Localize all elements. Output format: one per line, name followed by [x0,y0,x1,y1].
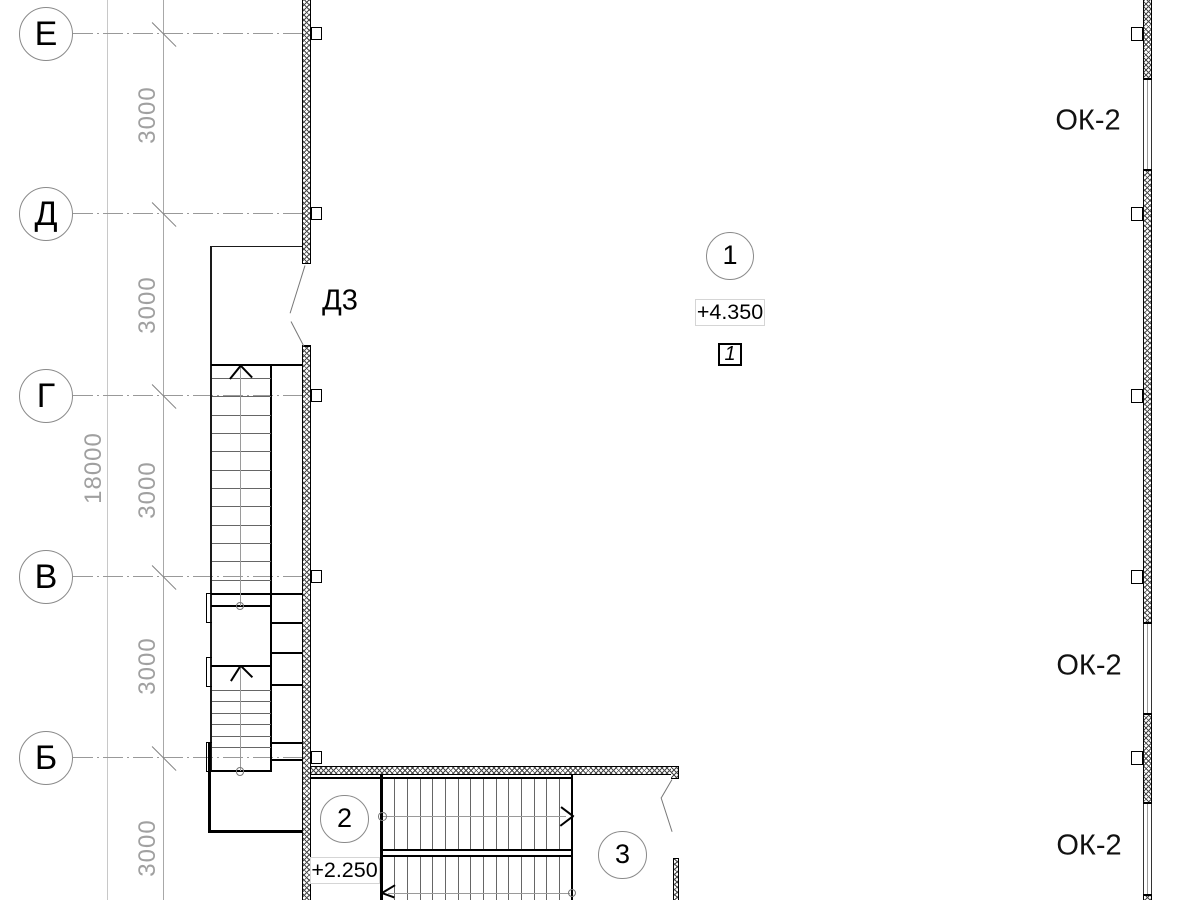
door-leader-line [661,779,672,797]
stair-tread [212,747,271,748]
grid-axis-bubble: Д [19,187,73,241]
wall-pilaster [311,389,323,402]
stair-tread [212,736,271,737]
stair-tread [212,488,271,489]
stair-tread [394,779,395,849]
side-step-edge [271,622,302,624]
lower-stair-stringer [571,775,573,900]
stair-tread [534,779,535,849]
stair-tread [521,857,522,900]
window-glazing-line [1147,803,1148,895]
dimension-tick [151,746,176,771]
room-number-label: 2 [337,803,352,834]
wall-pilaster [311,751,323,764]
stair-walk-line [240,366,241,606]
window-end-cap [1143,622,1153,624]
wall-hatched [1143,0,1151,79]
dimension-label: 3000 [136,276,160,333]
stair-tread [559,779,560,849]
dimension-tick [151,384,176,409]
lower-stair-stringer [380,775,382,900]
wall-pilaster [1131,27,1144,41]
stair-tread [546,857,547,900]
window-tag: ОК-2 [1055,107,1120,136]
stair-tread [212,506,271,507]
stair-tread [508,779,509,849]
stair-tread [212,690,271,691]
axis-line [73,213,302,214]
stair-tread [212,713,271,714]
stair-direction-arrow [240,365,253,378]
axis-line [73,576,302,577]
door-leader-line [661,797,673,831]
dimension-tick [151,202,176,227]
elevation-box: +4.350 [695,299,765,326]
stair-tread [458,857,459,900]
elevation-value: +4.350 [697,300,763,325]
stair-tread [212,396,271,397]
stair-tread [212,525,271,526]
stair-tread [496,857,497,900]
stair-tread [521,779,522,849]
room-number-circle: 2 [320,795,369,844]
stair-tread [483,857,484,900]
stair-tread [420,779,421,849]
stair-tread [496,779,497,849]
wall-hatched [673,858,680,900]
window-glazing-line [1147,623,1148,714]
stair-tread [212,724,271,725]
stair-tread [508,857,509,900]
stairwell-top-wall-line [211,246,302,248]
grid-axis-label: Д [34,195,57,234]
stair-tread [394,857,395,900]
grid-axis-bubble: Г [19,369,73,423]
wall-hatched [1143,170,1151,623]
stairwell-pilaster [206,742,213,772]
door-leader-line [291,321,305,346]
stair-tread [458,779,459,849]
wall-pilaster [1131,207,1144,221]
stair-tread [445,857,446,900]
walk-line-start-circle [568,889,576,897]
side-step-edge [271,684,302,686]
stair-walk-line [388,893,570,894]
stair-tread [212,561,271,562]
dimension-label: 3000 [136,819,160,876]
window-tag: ОК-2 [1056,832,1121,861]
side-step-edge [271,742,302,744]
wall-pilaster [1131,389,1144,403]
grid-axis-label: Е [35,15,58,54]
axis-line [73,33,302,34]
wall-hatched [302,346,311,900]
wall-pilaster [311,27,323,40]
dimension-tick [151,22,176,47]
grid-axis-bubble: В [19,550,73,604]
window-end-cap [1143,802,1153,804]
wall-hatched [671,766,680,779]
wall-end-cap [302,263,311,265]
wall-pilaster [311,207,323,220]
flight-separator [382,855,572,857]
stairwell-pilaster [206,657,213,687]
flight-end-edge [211,593,302,595]
grid-axis-bubble: Е [19,7,73,61]
side-step-edge [271,652,302,654]
stair-tread [212,433,271,434]
door-leader-line [290,265,306,313]
window-end-cap [1143,78,1153,80]
dimension-label: 3000 [136,86,160,143]
dimension-tick [151,565,176,590]
flight-separator [382,849,572,851]
stair-top-edge [211,364,302,366]
stairwell-bottom-edge [209,830,302,833]
door-tag: Д3 [322,287,358,316]
walk-line-start-circle [236,767,244,775]
stair-stringer [270,365,272,772]
axis-line [73,757,302,758]
stair-tread [212,543,271,544]
floor-plan-canvas: ЕДГВБ3000300030003000300018000Д3ОК-2ОК-2… [0,0,1200,900]
stair-walk-line [240,667,241,771]
detail-mark-box: 1 [718,343,742,366]
stair-tread [534,857,535,900]
window-end-cap [1143,169,1153,171]
stair-tread [212,470,271,471]
wall-pilaster [311,570,323,583]
stair-tread [470,779,471,849]
walk-line-start-circle [378,812,386,820]
dimension-label: 3000 [136,637,160,694]
overall-dimension-label: 18000 [82,432,106,504]
wall-pilaster [1131,570,1144,584]
side-step-edge [271,759,302,761]
walk-line-start-circle [236,602,244,610]
wall-hatched [1143,714,1151,803]
stair-tread [212,378,271,379]
stair-tread [483,779,484,849]
stair-tread [432,779,433,849]
grid-axis-bubble: Б [19,731,73,785]
grid-axis-label: Б [35,739,57,778]
stair-tread [212,451,271,452]
elevation-value: +2.250 [311,858,377,883]
grid-axis-label: В [35,558,58,597]
wall-pilaster [1131,751,1144,765]
wall-hatched [311,766,671,775]
stair-tread [445,779,446,849]
stair-tread [212,415,271,416]
dimension-label: 3000 [136,461,160,518]
window-end-cap [1143,894,1153,896]
stair-tread [407,857,408,900]
window-tag: ОК-2 [1056,652,1121,681]
elevation-box: +2.250 [310,857,380,884]
room-number-label: 1 [722,240,737,271]
stair-tread [432,857,433,900]
stair-tread [407,779,408,849]
room-number-label: 3 [615,839,630,870]
room-number-circle: 1 [706,232,755,281]
stair-direction-arrow [240,666,253,679]
dimension-line [163,0,164,900]
stairwell-left-wall-line [210,246,212,772]
stair-walk-line [383,816,566,817]
stair-tread [212,701,271,702]
grid-axis-label: Г [37,377,55,416]
stair-tread [470,857,471,900]
window-end-cap [1143,713,1153,715]
wall-hatched [302,0,311,264]
stair-tread [212,580,271,581]
window-glazing-line [1147,79,1148,170]
stair-tread [420,857,421,900]
stair-tread [559,857,560,900]
room-number-circle: 3 [598,831,647,880]
detail-mark-label: 1 [724,343,735,366]
stairwell-pilaster [206,593,213,623]
stair-tread [546,779,547,849]
